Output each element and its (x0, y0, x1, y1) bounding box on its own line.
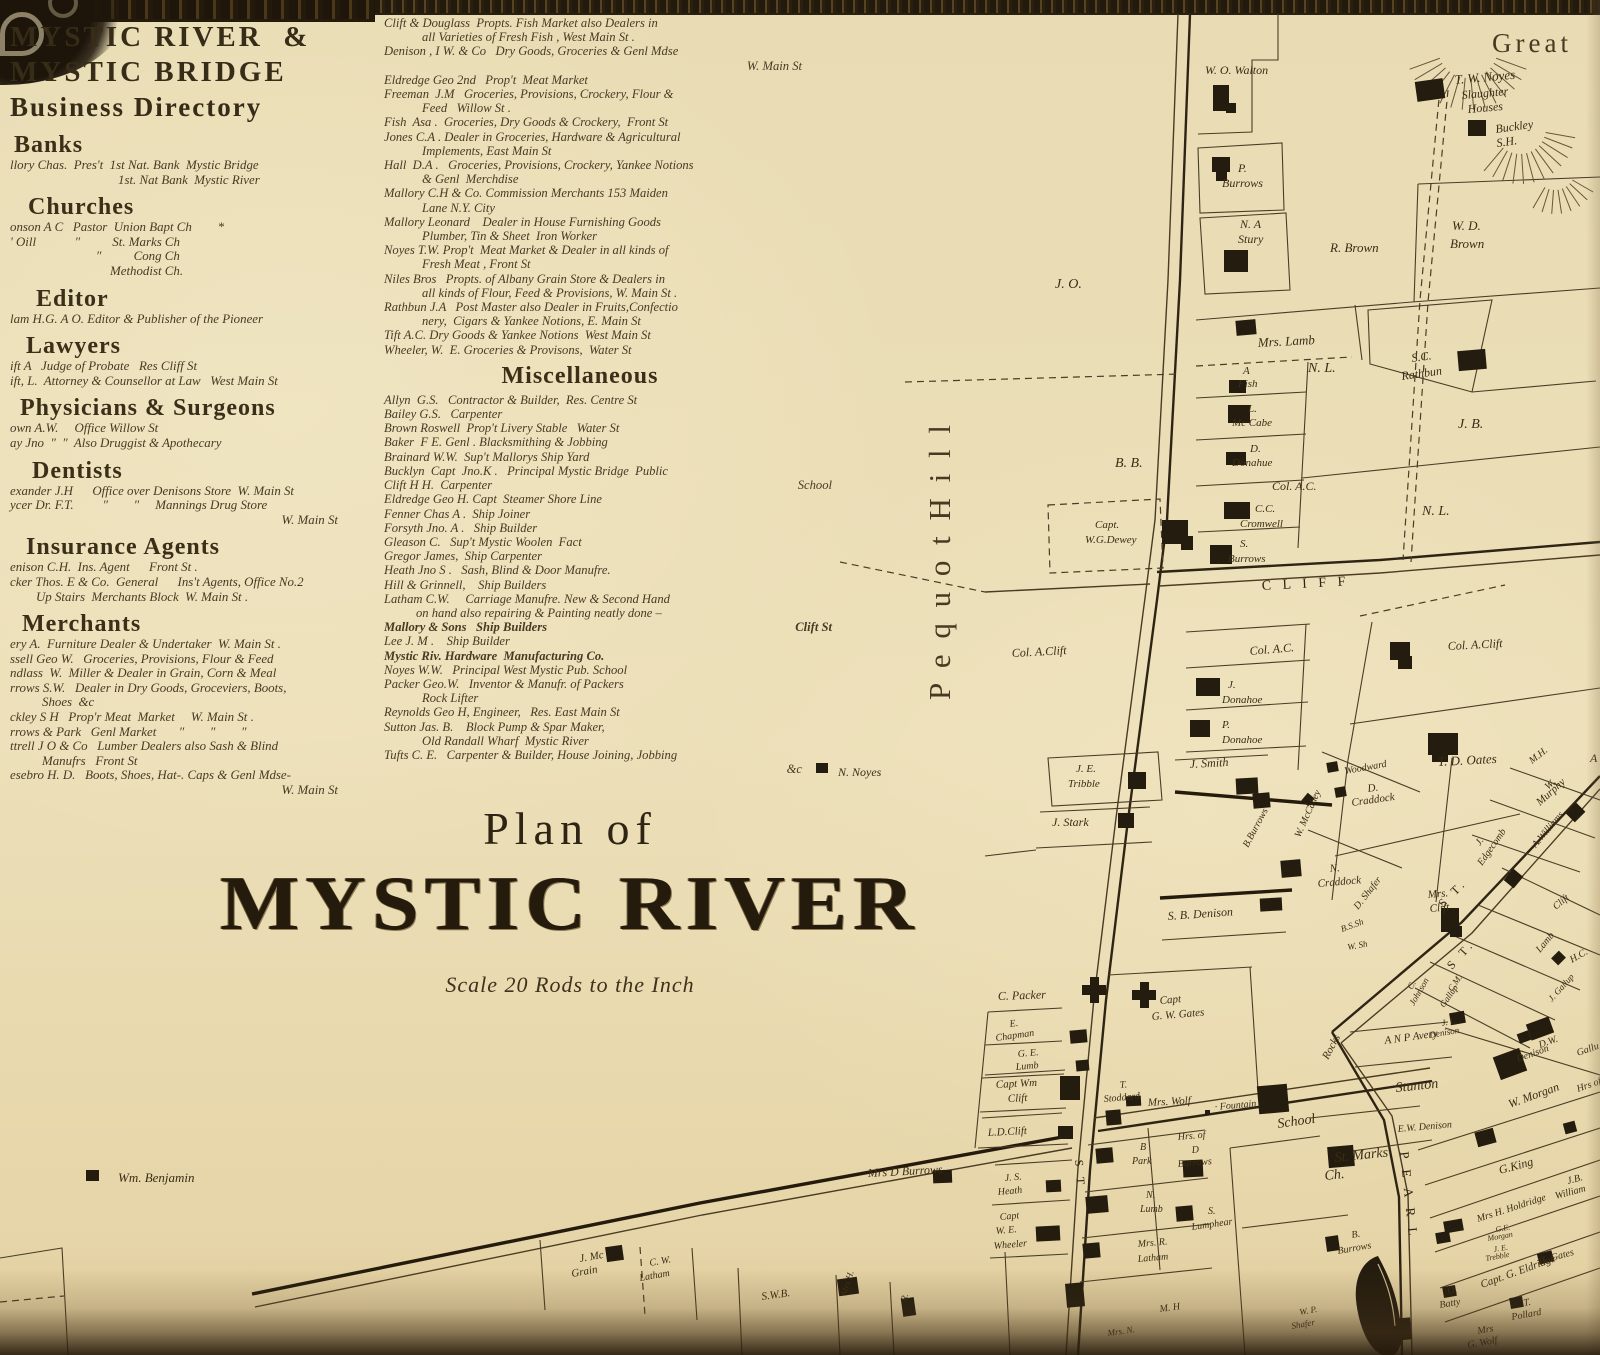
property-owner-label: W. E. (995, 1224, 1017, 1237)
property-owner-label: Wheeler (993, 1238, 1027, 1252)
property-owner-label: J. (1473, 836, 1486, 848)
dashed-boundary-line (1403, 88, 1440, 560)
directory-section-heading: Banks (10, 132, 372, 158)
property-owner-label: Gallu (1575, 1041, 1600, 1059)
property-owner-label: · Fountain (1214, 1098, 1256, 1113)
property-owner-label: J. O. (1055, 277, 1082, 292)
property-owner-label: J. Gallup (1546, 971, 1576, 1003)
parcel-boundary-line (1302, 447, 1600, 478)
entry-text: ift, L. Attorney & Counsellor at Law Wes… (10, 374, 278, 388)
directory-entry-line: Reynolds Geo H, Engineer, Res. East Main… (384, 705, 836, 719)
building-marker (1140, 982, 1149, 1008)
property-owner-label: Mc Cabe (1231, 417, 1272, 429)
parcel-boundary-line (1472, 381, 1596, 392)
property-owner-label: C. Packer (998, 987, 1047, 1003)
parcel-boundary-line (1298, 362, 1308, 548)
property-owner-label: N. (1328, 862, 1340, 875)
property-owner-label: Mrs. Lamb (1256, 332, 1315, 350)
property-owner-label: P. (1221, 719, 1230, 731)
entry-text: Mallory C.H & Co. Commission Merchants 1… (384, 186, 668, 200)
property-owner-label: Fish (1237, 378, 1258, 390)
property-owner-label: N. L. (1307, 361, 1336, 376)
building-marker (1085, 1195, 1108, 1214)
property-owner-label: Col. A.C. (1249, 640, 1295, 658)
property-owner-label: T. D. Oates (1437, 751, 1497, 769)
road-line (985, 584, 1150, 592)
property-owner-label: Donahoe (1221, 694, 1262, 706)
building-marker (1036, 1225, 1061, 1241)
entry-text: W. Main St (747, 59, 802, 73)
entry-text: Fresh Meat , Front St (422, 257, 531, 271)
directory-entry-line: ycer Dr. F.T. ″ ″ Mannings Drug Store (10, 498, 372, 513)
property-owner-label: D (1190, 1144, 1200, 1156)
property-owner-label: Burrows (1337, 1240, 1373, 1257)
entry-text: Mystic Riv. Hardware Manufacturing Co. (384, 649, 604, 663)
hill-hatching (1535, 149, 1553, 173)
building-marker (1090, 977, 1099, 1003)
hill-hatching (1484, 148, 1503, 171)
building-marker (1058, 1126, 1073, 1139)
plan-title: MYSTIC RIVER (210, 862, 930, 947)
directory-entry-line: all kinds of Flour, Feed & Provisions, W… (384, 286, 836, 300)
building-marker (1235, 319, 1256, 336)
entry-text: ' Oill ″ St. Marks Ch (10, 235, 180, 249)
entry-text: Allyn G.S. Contractor & Builder, Res. Ce… (384, 393, 637, 407)
directory-entry-line: Old Randall Wharf Mystic River (384, 734, 836, 748)
parcel-boundary-line (1080, 1268, 1212, 1282)
directory-entry-line: rrows S.W. Dealer in Dry Goods, Grocevie… (10, 681, 372, 696)
directory-entry-line: Feed Willow St . (384, 101, 836, 115)
entry-text: nery, Cigars & Yankee Notions, E. Main S… (422, 314, 641, 328)
building-marker (1260, 897, 1283, 911)
dashed-boundary-line (840, 562, 985, 592)
parcel-boundary-line (1186, 624, 1310, 632)
directory-section-heading: Editor (10, 286, 372, 312)
parcel-boundary-line (992, 1200, 1070, 1205)
directory-entry-line: lam H.G. A O. Editor & Publisher of the … (10, 312, 372, 327)
parcel-boundary-line (1350, 688, 1600, 724)
property-owner-label: W. O. Walton (1205, 63, 1268, 77)
hill-hatching (1552, 190, 1554, 214)
directory-entry-line: rrows & Park Genl Market ″ ″ ″ (10, 725, 372, 740)
building-marker (1563, 1121, 1577, 1135)
property-owner-label: J. (1228, 679, 1236, 691)
building-marker (1443, 1218, 1464, 1233)
property-owner-label: J. B. (1458, 417, 1483, 432)
entry-text: Fish Asa . Groceries, Dry Goods & Crocke… (384, 115, 668, 129)
directory-continued-entries: Clift & Douglass Propts. Fish Market als… (384, 16, 836, 357)
dashed-boundary-line (1411, 90, 1448, 562)
parcel-boundary-line (980, 1108, 1066, 1112)
property-owner-label: O. (1447, 1284, 1458, 1297)
property-owner-label: Col. A.C. (1272, 479, 1316, 493)
entry-text: enison C.H. Ins. Agent Front St . (10, 560, 198, 574)
property-owner-label: E.W. Denison (1396, 1119, 1452, 1135)
entry-text: Methodist Ch. (110, 264, 183, 278)
building-marker (1175, 1205, 1193, 1221)
directory-entry-line: on hand also repairing & Painting neatly… (384, 606, 836, 620)
entry-text: 1st. Nat Bank Mystic River (118, 173, 260, 187)
directory-entry-line: Niles Bros Propts. of Albany Grain Store… (384, 272, 836, 286)
dashed-boundary-line (905, 374, 1180, 382)
property-owner-label: Heath (996, 1185, 1022, 1198)
parcel-boundary-line (982, 1113, 1062, 1118)
property-owner-label: Cromwell (1240, 518, 1283, 530)
directory-entry-line: ndlass W. Miller & Dealer in Grain, Corn… (10, 666, 372, 681)
property-owner-label: J. Stark (1052, 815, 1089, 829)
directory-entry-line: ift, L. Attorney & Counsellor at Law Wes… (10, 374, 372, 389)
directory-section-heading: Physicians & Surgeons (10, 395, 372, 421)
entry-text: Wheeler, W. E. Groceries & Provisons, Wa… (384, 343, 632, 357)
parcel-boundary-line (1186, 746, 1306, 752)
property-owner-label: Lamb (1533, 930, 1557, 955)
entry-text: Rathbun J.A Post Master also Dealer in F… (384, 300, 678, 314)
parcel-boundary-line (1242, 1215, 1348, 1228)
property-owner-label: Burrows (1228, 553, 1266, 565)
directory-entry-line: SchoolClift H H. Carpenter (384, 478, 836, 492)
property-owner-label: A.Williams (1529, 809, 1566, 850)
parcel-boundary-line (1196, 434, 1306, 440)
property-owner-label: C.C. (1255, 503, 1275, 515)
property-owner-label: Hrs. of (1176, 1130, 1207, 1144)
property-owner-label: Houses (1466, 99, 1504, 116)
directory-sections: Banksllory Chas. Pres't 1st Nat. Bank My… (10, 132, 372, 798)
entry-text: Denison , I W. & Co Dry Goods, Groceries… (384, 44, 678, 58)
entry-text: all Varieties of Fresh Fish , West Main … (422, 30, 635, 44)
entry-text: W. Main St (282, 783, 338, 797)
property-owner-label: Craddock (1351, 791, 1397, 809)
entry-text: Latham C.W. Carriage Manufre. New & Seco… (384, 592, 670, 606)
property-owner-label: Trebble (1485, 1250, 1511, 1263)
property-owner-label: Brown (1450, 236, 1484, 251)
entry-text: lam H.G. A O. Editor & Publisher of the … (10, 312, 263, 326)
property-owner-label: G. Wolf (1467, 1335, 1500, 1351)
entry-text: Implements, East Main St (422, 144, 551, 158)
entry-text: ttrell J O & Co Lumber Dealers also Sash… (10, 739, 278, 753)
directory-section-heading: Lawyers (10, 333, 372, 359)
directory-entry-line: Allyn G.S. Contractor & Builder, Res. Ce… (384, 393, 836, 407)
entry-text: Gleason C. Sup't Mystic Woolen Fact (384, 535, 582, 549)
directory-entry-line: Fenner Chas A . Ship Joiner (384, 507, 836, 521)
property-owner-label: Mrs H. Holdridge (1475, 1192, 1548, 1225)
parcel-boundary-line (1108, 967, 1252, 975)
entry-text: rrows S.W. Dealer in Dry Goods, Grocevie… (10, 681, 286, 695)
parcel-boundary-line (995, 1160, 1072, 1165)
property-owner-label: Latham (1136, 1251, 1168, 1265)
directory-entry-line: Shoes &c (10, 695, 372, 710)
entry-text: Plumber, Tin & Sheet Iron Worker (422, 229, 597, 243)
property-owner-label: A (1242, 365, 1250, 377)
directory-title: MYSTIC RIVER & MYSTIC BRIDGE Business Di… (10, 20, 372, 125)
property-owner-label: Mrs. N. (1106, 1324, 1135, 1338)
building-marker (1118, 813, 1134, 828)
entry-text: Baker F E. Genl . Blacksmithing & Jobbin… (384, 435, 608, 449)
directory-entry-line: all Varieties of Fresh Fish , West Main … (384, 30, 836, 44)
property-owner-label: Capt Wm (996, 1077, 1038, 1091)
parcel-boundary-line (1440, 1232, 1600, 1288)
property-owner-label: Park (1131, 1156, 1152, 1167)
property-owner-label: R. Brown (1329, 240, 1379, 255)
property-owner-label: Clift (1551, 892, 1572, 912)
map-sheet: GreatT. W. NoyesSlaughterHousesBuckleyS.… (0, 0, 1600, 1355)
directory-entry-line: & Genl Merchdise (384, 172, 836, 186)
entry-text: rrows & Park Genl Market ″ ″ ″ (10, 725, 247, 739)
directory-entry-line: Eldredge Geo 2nd Prop't Meat Market (384, 73, 836, 87)
property-owner-label: Col. A.Clift (1011, 643, 1067, 660)
parcel-boundary-line (1310, 1106, 1420, 1118)
building-marker (1212, 157, 1230, 172)
property-owner-label: Donahue (1231, 457, 1272, 469)
property-owner-label: Woodward (1344, 759, 1389, 777)
directory-entry-line: ery A. Furniture Dealer & Undertaker W. … (10, 637, 372, 652)
property-owner-label: G. E. (1017, 1047, 1039, 1060)
parcel-boundary-line (1355, 305, 1362, 360)
entry-text: Packer Geo.W. Inventor & Manufr. of Pack… (384, 677, 624, 691)
property-owner-label: N. (1145, 1190, 1155, 1201)
property-owner-label: Shafer (1291, 1317, 1316, 1331)
building-marker (1252, 792, 1270, 808)
entry-text: ndlass W. Miller & Dealer in Grain, Corn… (10, 666, 276, 680)
plan-title-block: Plan of MYSTIC RIVER Scale 20 Rods to th… (210, 800, 930, 998)
building-marker (1128, 772, 1146, 789)
property-owner-label: W.G.Dewey (1085, 534, 1137, 546)
entry-text: Up Stairs Merchants Block W. Main St . (36, 590, 248, 604)
entry-text: ery A. Furniture Dealer & Undertaker W. … (10, 637, 281, 651)
entry-text: Brainard W.W. Sup't Mallorys Ship Yard (384, 450, 589, 464)
property-owner-label: P. (1237, 161, 1247, 175)
property-owner-label: L.D.Clift (987, 1125, 1029, 1139)
entry-text: exander J.H Office over Denisons Store W… (10, 484, 294, 498)
property-owner-label: Hrs of (1574, 1075, 1600, 1095)
building-marker (1105, 1109, 1121, 1125)
directory-entry-line: Clift & Douglass Propts. Fish Market als… (384, 16, 836, 30)
entry-text: W. Main St (282, 513, 338, 527)
entry-right-text: School (798, 478, 836, 492)
directory-entry-line: W. Main St (384, 59, 836, 73)
directory-entry-line: Brainard W.W. Sup't Mallorys Ship Yard (384, 450, 836, 464)
property-owner-label: Capt. (1095, 519, 1119, 531)
parcel-boundary-line (1186, 660, 1310, 668)
directory-entry-line: Baker F E. Genl . Blacksmithing & Jobbin… (384, 435, 836, 449)
property-owner-label: Ch. (1324, 1167, 1345, 1184)
hill-hatching (1572, 180, 1593, 192)
directory-entry-line: Bucklyn Capt Jno.K . Principal Mystic Br… (384, 464, 836, 478)
entry-text: Lane N.Y. City (422, 201, 495, 215)
directory-entry-line: Latham C.W. Carriage Manufre. New & Seco… (384, 592, 836, 606)
property-owner-label: Grain (570, 1263, 598, 1279)
hill-hatching (1570, 184, 1588, 200)
directory-entry-line: Mallory C.H & Co. Commission Merchants 1… (384, 186, 836, 200)
district-name-label: Great (1492, 28, 1572, 58)
directory-entry-line: Heath Jno S . Sash, Blind & Door Manufre… (384, 563, 836, 577)
directory-title-line: Business Directory (10, 90, 372, 125)
directory-entry-line: Plumber, Tin & Sheet Iron Worker (384, 229, 836, 243)
property-owner-label: Lumb (1014, 1060, 1039, 1073)
building-marker (1468, 120, 1486, 136)
entry-text: & Genl Merchdise (422, 172, 518, 186)
property-owner-label: Tribble (1068, 778, 1100, 790)
parcel-boundary-line (540, 1240, 545, 1310)
property-owner-label: B. B. (1115, 456, 1143, 471)
directory-entry-line: Fresh Meat , Front St (384, 257, 836, 271)
miscellaneous-heading: Miscellaneous (384, 361, 776, 391)
building-marker (1224, 502, 1250, 519)
building-marker (1224, 250, 1248, 272)
property-owner-label: N. A (1239, 217, 1262, 231)
building-marker (1398, 656, 1412, 669)
directory-entry-line: onson A C Pastor Union Bapt Ch * (10, 220, 372, 235)
parcel-boundary-line (985, 850, 1036, 856)
property-owner-label: S. (1240, 538, 1248, 550)
parcel-boundary-line (1230, 1148, 1245, 1355)
building-marker (1326, 761, 1339, 773)
property-owner-label: S.H. (1495, 133, 1517, 150)
property-owner-label: W. Morgan (1506, 1079, 1561, 1110)
parcel-boundary-line (1414, 184, 1418, 302)
property-owner-label: S.W.B. (761, 1287, 791, 1303)
directory-entry-line: ttrell J O & Co Lumber Dealers also Sash… (10, 739, 372, 754)
parcel-boundary-line (738, 1268, 742, 1355)
parcel-boundary-line (1196, 288, 1600, 320)
property-owner-label: School (1276, 1112, 1316, 1132)
building-marker (1566, 803, 1586, 823)
property-owner-label: Craddock (1317, 874, 1362, 890)
building-marker (1395, 1317, 1412, 1340)
property-owner-label: B. (1351, 1229, 1361, 1241)
directory-entry-line: Tufts C. E. Carpenter & Builder, House J… (384, 748, 836, 762)
parcel-boundary-line (988, 1008, 1062, 1012)
entry-text: Tift A.C. Dry Goods & Yankee Notions Wes… (384, 328, 651, 342)
directory-entry-line: cker Thos. E & Co. General Ins't Agents,… (10, 575, 372, 590)
parcel-boundary-line (890, 1282, 894, 1355)
hill-hatching (1539, 146, 1561, 166)
property-owner-label: Burrows (1177, 1156, 1212, 1170)
directory-entry-line: Rock Lifter (384, 691, 836, 705)
property-owner-label: N. Noyes (837, 765, 882, 779)
entry-text: ay Jno ″ ″ Also Druggist & Apothecary (10, 436, 221, 450)
building-marker (1334, 786, 1347, 798)
property-owner-label: D. (1249, 443, 1261, 455)
parcel-boundary-line (1298, 624, 1306, 770)
property-owner-label: Lumphear (1190, 1216, 1233, 1233)
property-owner-label: Batty (1439, 1296, 1462, 1311)
directory-entry-line: ay Jno ″ ″ Also Druggist & Apothecary (10, 436, 372, 451)
directory-entry-line: Packer Geo.W. Inventor & Manufr. of Pack… (384, 677, 836, 691)
business-directory-right-column: Clift & Douglass Propts. Fish Market als… (384, 16, 836, 776)
street-name-label: S T (1072, 1159, 1088, 1189)
parcel-boundary-line (1036, 842, 1152, 848)
entry-text: Bucklyn Capt Jno.K . Principal Mystic Br… (384, 464, 668, 478)
entry-text: &c (787, 762, 802, 776)
property-owner-label: Donahoe (1221, 734, 1262, 746)
entry-text: Freeman J.M Groceries, Provisions, Crock… (384, 87, 673, 101)
entry-text: on hand also repairing & Painting neatly… (416, 606, 662, 620)
hill-hatching (1542, 189, 1549, 212)
dashed-boundary-line (0, 1296, 64, 1302)
parcel-boundary-line (1250, 967, 1258, 1090)
directory-entry-line: ckley S H Prop'r Meat Market W. Main St … (10, 710, 372, 725)
directory-entry-line: Manufrs Front St (10, 754, 372, 769)
property-owner-label: Stury (1238, 232, 1264, 246)
directory-entry-line: ' Oill ″ St. Marks Ch (10, 235, 372, 250)
parcel-boundary-line (1230, 1136, 1320, 1148)
directory-entry-line: nery, Cigars & Yankee Notions, E. Main S… (384, 314, 836, 328)
property-owner-label: Lumb (1139, 1204, 1163, 1215)
entry-right-text: Clift St (795, 620, 836, 634)
directory-section-heading: Merchants (10, 611, 372, 637)
building-marker (1226, 103, 1236, 113)
entry-text: ift A Judge of Probate Res Cliff St (10, 359, 197, 373)
property-owner-label: William (1554, 1183, 1587, 1202)
entry-text: esebro H. D. Boots, Shoes, Hat-. Caps & … (10, 768, 291, 782)
directory-title-line: MYSTIC BRIDGE (10, 55, 372, 90)
directory-entry-line: Gleason C. Sup't Mystic Woolen Fact (384, 535, 836, 549)
property-owner-label: B.Burrows (1241, 806, 1271, 849)
property-owner-label: T. (1523, 1297, 1532, 1309)
property-owner-label: W. D. (1452, 218, 1481, 233)
plan-subtitle: Plan of (210, 800, 930, 858)
directory-entry-line: Jones C.A . Dealer in Groceries, Hardwar… (384, 130, 836, 144)
entry-text: Fenner Chas A . Ship Joiner (384, 507, 530, 521)
hill-hatching (1513, 154, 1517, 184)
entry-text: Manufrs Front St (42, 754, 138, 768)
hill-hatching (1544, 137, 1572, 148)
building-marker (1280, 859, 1301, 878)
property-owner-label: E. (1008, 1018, 1019, 1030)
parcel-boundary-line (1332, 622, 1372, 900)
directory-entry-line: Methodist Ch. (10, 264, 372, 279)
entry-text: Jones C.A . Dealer in Groceries, Hardwar… (384, 130, 681, 144)
directory-entry-line: Sutton Jas. B. Block Pump & Spar Maker, (384, 720, 836, 734)
entry-text: Reynolds Geo H, Engineer, Res. East Main… (384, 705, 620, 719)
property-owner-label: M. H (1158, 1301, 1182, 1315)
property-owner-label: A (1589, 751, 1598, 765)
building-marker (1236, 777, 1259, 794)
entry-text: Sutton Jas. B. Block Pump & Spar Maker, (384, 720, 605, 734)
directory-entry-line: llory Chas. Pres't 1st Nat. Bank Mystic … (10, 158, 372, 173)
directory-entry-line: Lane N.Y. City (384, 201, 836, 215)
property-owner-label: Col. A.Clift (1447, 636, 1503, 653)
entry-text: own A.W. Office Willow St (10, 421, 158, 435)
parcel-boundary-line (0, 1248, 68, 1355)
entry-text: Mallory Leonard Dealer in House Furnishi… (384, 215, 661, 229)
directory-entry-line: Wheeler, W. E. Groceries & Provisons, Wa… (384, 343, 836, 357)
directory-entry-line: Freeman J.M Groceries, Provisions, Crock… (384, 87, 836, 101)
entry-text: Shoes &c (42, 695, 94, 709)
property-owner-label: Stunton (1395, 1077, 1439, 1096)
property-owner-label: T. (1119, 1079, 1127, 1091)
directory-title-line: MYSTIC RIVER & (10, 20, 372, 55)
property-owner-label: Denison (1428, 1025, 1461, 1040)
plan-scale-note: Scale 20 Rods to the Inch (210, 972, 930, 998)
building-marker (1082, 1242, 1100, 1258)
hill-name-label: P e q u o t H i l l (922, 421, 957, 700)
directory-entry-line: exander J.H Office over Denisons Store W… (10, 484, 372, 499)
property-owner-label: Mrs D Burrows (866, 1162, 943, 1180)
property-owner-label: Capt (999, 1210, 1020, 1223)
property-owner-label: B (1140, 1142, 1146, 1153)
property-owner-label: C. W. (649, 1254, 672, 1269)
property-owner-label: Capt (1159, 993, 1182, 1007)
property-owner-label: Wm. Benjamin (118, 1170, 195, 1185)
property-owner-label: Chapman (995, 1028, 1035, 1044)
building-marker (1065, 1282, 1085, 1307)
property-owner-label: L. (1247, 403, 1257, 415)
property-owner-label: Rathbun (1399, 363, 1442, 383)
property-owner-label: W. Sh (1347, 939, 1369, 952)
property-owner-label: M.H. (1526, 745, 1550, 767)
property-owner-label: Pollard (1510, 1307, 1544, 1323)
